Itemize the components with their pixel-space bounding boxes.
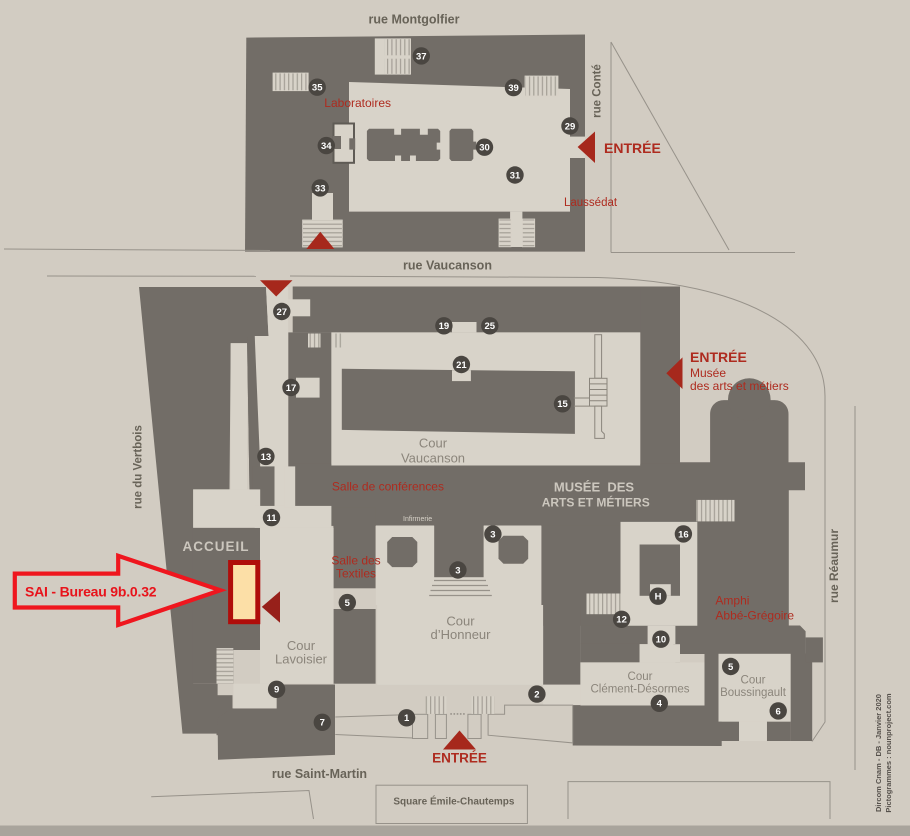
svg-text:25: 25	[485, 321, 496, 332]
svg-text:Pictogrammes : nounproject.com: Pictogrammes : nounproject.com	[884, 693, 893, 813]
svg-text:H: H	[655, 592, 662, 603]
svg-text:ACCUEIL: ACCUEIL	[183, 539, 250, 554]
svg-text:5: 5	[345, 598, 351, 609]
svg-text:Clément-Désormes: Clément-Désormes	[590, 684, 689, 696]
svg-text:Boussingault: Boussingault	[720, 687, 787, 699]
svg-text:rue Montgolfier: rue Montgolfier	[369, 13, 460, 27]
svg-text:Square Émile-Chautemps: Square Émile-Chautemps	[393, 795, 515, 808]
svg-text:ENTRÉE: ENTRÉE	[604, 140, 661, 156]
svg-text:ARTS ET MÉTIERS: ARTS ET MÉTIERS	[542, 495, 650, 510]
svg-text:39: 39	[508, 83, 519, 94]
svg-text:16: 16	[678, 529, 689, 540]
svg-text:3: 3	[490, 530, 495, 541]
svg-text:Cour: Cour	[419, 436, 448, 451]
svg-text:15: 15	[557, 399, 568, 410]
svg-text:17: 17	[286, 383, 297, 394]
svg-text:37: 37	[416, 51, 427, 62]
svg-text:10: 10	[656, 635, 667, 646]
svg-text:31: 31	[510, 170, 521, 181]
svg-text:rue du Vertbois: rue du Vertbois	[133, 425, 145, 509]
svg-text:Dircom Cnam - DB - Janvier 202: Dircom Cnam - DB - Janvier 2020	[874, 694, 883, 812]
svg-text:4: 4	[657, 699, 663, 710]
svg-text:rue Conté: rue Conté	[592, 64, 604, 118]
svg-text:Amphi: Amphi	[715, 594, 749, 608]
svg-text:7: 7	[320, 718, 325, 729]
svg-text:12: 12	[616, 615, 627, 626]
svg-text:ENTRÉE: ENTRÉE	[690, 349, 747, 365]
svg-text:Lavoisier: Lavoisier	[275, 652, 328, 667]
svg-text:19: 19	[439, 321, 450, 332]
svg-text:21: 21	[456, 360, 467, 371]
svg-text:MUSÉE DES: MUSÉE DES	[554, 480, 635, 495]
svg-text:27: 27	[277, 307, 288, 318]
svg-text:rue Réaumur: rue Réaumur	[827, 529, 841, 603]
svg-text:Cour: Cour	[628, 671, 653, 683]
svg-text:33: 33	[315, 183, 326, 194]
svg-text:3: 3	[455, 565, 460, 576]
svg-text:Cour: Cour	[741, 675, 766, 687]
svg-text:Salle des: Salle des	[331, 554, 380, 568]
svg-text:5: 5	[728, 662, 734, 673]
svg-text:2: 2	[534, 690, 539, 701]
svg-text:rue Saint-Martin: rue Saint-Martin	[272, 767, 367, 781]
svg-text:Infirmerie: Infirmerie	[403, 516, 432, 523]
svg-text:des arts et métiers: des arts et métiers	[690, 379, 789, 393]
svg-text:29: 29	[565, 121, 576, 132]
svg-text:Textiles: Textiles	[336, 567, 376, 581]
svg-text:1: 1	[404, 713, 410, 724]
svg-text:SAI - Bureau 9b.0.32: SAI - Bureau 9b.0.32	[25, 584, 157, 600]
svg-text:30: 30	[479, 143, 490, 154]
svg-text:ENTRÉE: ENTRÉE	[432, 751, 487, 766]
svg-text:Abbé-Grégoire: Abbé-Grégoire	[715, 609, 794, 623]
svg-text:Salle de conférences: Salle de conférences	[332, 480, 444, 494]
svg-text:35: 35	[312, 83, 323, 94]
svg-text:13: 13	[261, 452, 272, 463]
svg-text:Laboratoires: Laboratoires	[324, 96, 391, 110]
svg-text:rue Vaucanson: rue Vaucanson	[403, 259, 492, 273]
svg-text:d’Honneur: d’Honneur	[431, 627, 492, 642]
svg-text:Laussédat: Laussédat	[564, 197, 618, 209]
svg-text:6: 6	[776, 706, 781, 717]
svg-text:11: 11	[266, 513, 277, 524]
svg-text:Vaucanson: Vaucanson	[401, 451, 465, 466]
svg-text:34: 34	[321, 141, 332, 152]
svg-text:9: 9	[274, 685, 279, 696]
svg-text:Musée: Musée	[690, 366, 726, 380]
